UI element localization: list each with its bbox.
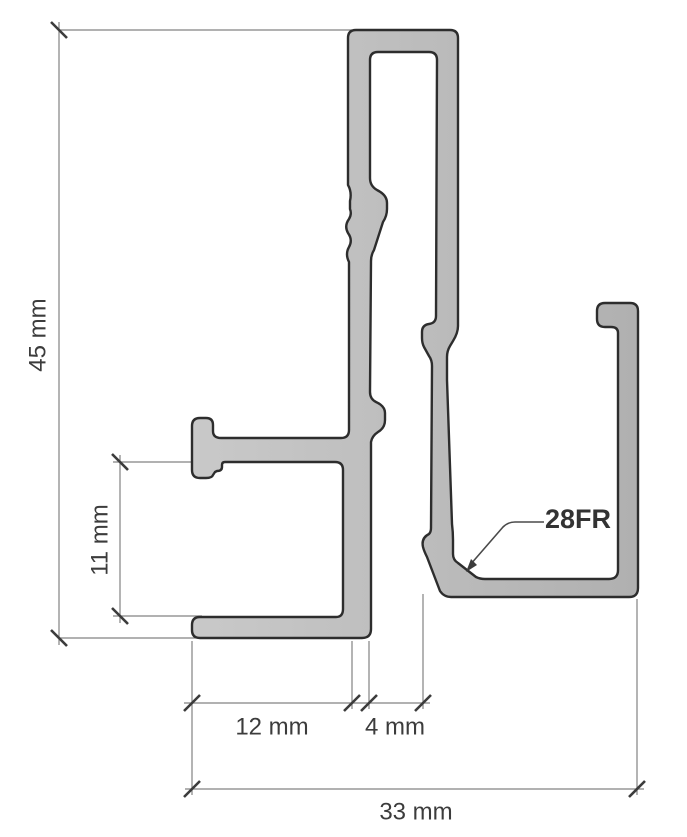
dim-label-45mm: 45 mm: [25, 298, 52, 371]
drawing-svg: 45 mm 11 mm 12 mm 4 mm 33 mm 28FR: [0, 0, 687, 837]
dim-hook-opening: [112, 454, 212, 624]
part-number-label: 28FR: [545, 504, 611, 534]
dim-label-33mm: 33 mm: [379, 799, 452, 826]
part-callout: [466, 522, 544, 572]
dim-label-11mm: 11 mm: [87, 504, 114, 576]
leader-arrowhead-icon: [466, 559, 477, 572]
dim-label-4mm: 4 mm: [365, 714, 425, 741]
profile-outline: [192, 30, 638, 638]
profile-drawing: 45 mm 11 mm 12 mm 4 mm 33 mm 28FR: [0, 0, 687, 837]
dim-label-12mm: 12 mm: [235, 714, 308, 741]
leader-line: [470, 522, 544, 565]
